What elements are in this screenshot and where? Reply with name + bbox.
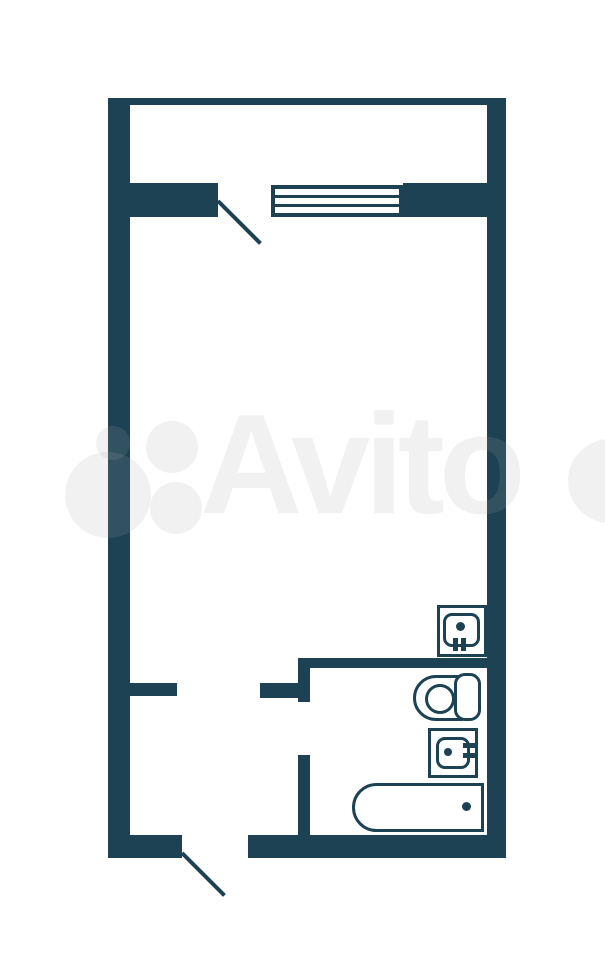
kitchen-sink-icon-drain (456, 622, 465, 631)
floorplan (0, 0, 605, 960)
kitchen-sink-icon-faucet-1 (453, 638, 458, 651)
window-loggia (271, 185, 403, 217)
wall-loggia-left (130, 183, 218, 217)
door-swing-entrance (181, 852, 226, 897)
wall-bottom-left (108, 835, 182, 858)
wall-left (108, 98, 130, 858)
window-loggia-line-2 (275, 204, 399, 207)
window-loggia-line-1 (275, 195, 399, 198)
bathtub-icon-drain (462, 802, 471, 811)
wall-bath-vertical-lower (298, 755, 310, 835)
wall-loggia-right (403, 183, 487, 217)
wall-hall-stub-left (130, 683, 177, 696)
wall-right (487, 98, 506, 858)
washbasin-icon-drain (444, 748, 452, 756)
wall-top (108, 98, 506, 105)
kitchen-sink-icon-faucet-2 (461, 638, 466, 651)
washbasin-icon-faucet-1 (463, 743, 476, 748)
toilet-icon-tank (454, 673, 481, 721)
toilet-icon-seat (425, 684, 455, 714)
wall-bottom-right (248, 835, 506, 858)
wall-bath-top (298, 658, 487, 668)
washbasin-icon-faucet-2 (463, 753, 476, 758)
floorplan-canvas: Avito (0, 0, 605, 960)
door-swing-balcony (217, 200, 262, 245)
